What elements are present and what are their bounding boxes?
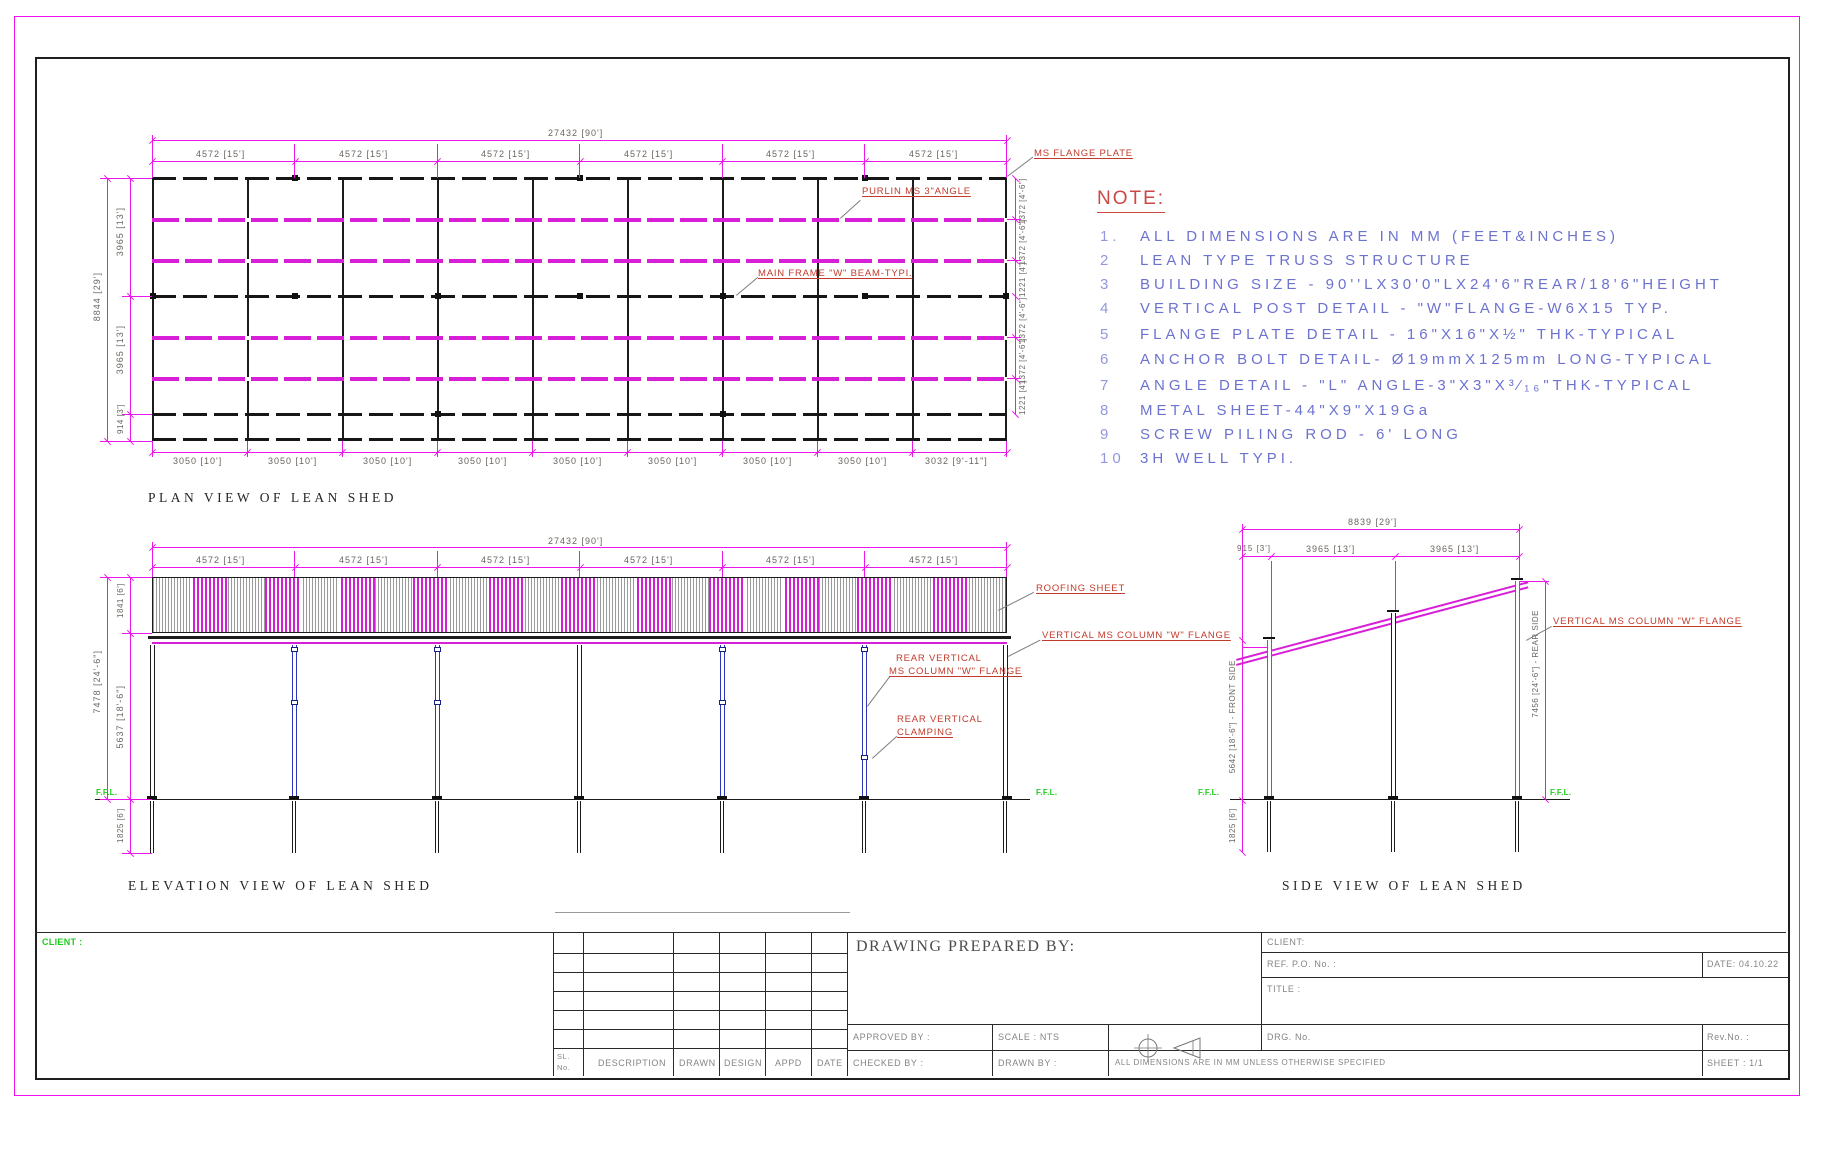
ffl-label: F.F.L. [1550, 788, 1571, 797]
ext-line [1271, 561, 1272, 640]
tb-line [553, 991, 847, 992]
ext-line [437, 551, 438, 577]
tb-date: DATE: 04.10.22 [1707, 959, 1779, 969]
dim-label: 3050 [10'] [648, 456, 697, 466]
clamp-marker [434, 647, 441, 652]
flange-plate [435, 293, 441, 299]
dim-label: 5637 [18'-6"] [115, 685, 125, 748]
note-num: 2 [1100, 252, 1140, 269]
sv-ground-line [1230, 799, 1570, 800]
ext-line [122, 853, 152, 854]
ev-roofing-label: ROOFING SHEET [1036, 583, 1125, 594]
dim-label: 7478 [24'-6"] [92, 650, 102, 713]
dim-label: 3050 [10'] [838, 456, 887, 466]
note-num: 5 [1100, 326, 1140, 343]
note-text: FLANGE PLATE DETAIL - 16"X16"X½" THK-TYP… [1140, 326, 1678, 343]
dim-label: 4572 [15'] [624, 149, 673, 159]
ext-line [579, 144, 580, 178]
sv-dim-overall [1242, 529, 1519, 530]
screw-pile [1391, 801, 1395, 852]
plan-view-title: PLAN VIEW OF LEAN SHED [148, 490, 397, 506]
dim-label: 3965 [13'] [1306, 544, 1355, 554]
dim-label: 3050 [10'] [363, 456, 412, 466]
base-plate [574, 796, 584, 799]
sv-column-cap [1511, 578, 1523, 580]
plan-dim-overall [152, 140, 1007, 141]
ext-line [722, 551, 723, 577]
dim-label: 7456 [24'-6"] - REAR SIDE [1531, 610, 1540, 718]
flange-plate [292, 175, 298, 181]
base-plate [859, 796, 869, 799]
tb-checked-by: CHECKED BY : [853, 1058, 924, 1068]
note-text: BUILDING SIZE - 90''LX30'0"LX24'6"REAR/1… [1140, 276, 1723, 293]
note-item: 103H WELL TYPI. [1100, 450, 1297, 467]
ev-ground-line [95, 799, 1030, 800]
base-plate [717, 796, 727, 799]
tb-line [847, 932, 848, 1076]
note-num: 7 [1100, 377, 1140, 394]
base-plate [1388, 796, 1398, 799]
ext-line [294, 551, 295, 577]
ext-line [1519, 581, 1549, 582]
dim-label: 4572 [15'] [766, 555, 815, 565]
base-plate [432, 796, 442, 799]
tb-rev-no: Rev.No. : [1707, 1032, 1749, 1042]
screw-pile [1003, 801, 1007, 853]
base-plate [1264, 796, 1274, 799]
tb-line [847, 1024, 1788, 1025]
sv-rear-column [1515, 581, 1520, 799]
plan-purlin [152, 336, 1007, 340]
note-text: 3H WELL TYPI. [1140, 450, 1297, 467]
dim-label: 5642 [18'-6"] - FRONT SIDE [1228, 660, 1237, 773]
tb-line [553, 1029, 847, 1030]
dim-label: 4572 [15'] [481, 555, 530, 565]
dim-label: 8839 [29'] [1348, 517, 1397, 527]
fold-mark-line [555, 912, 850, 913]
tb-col-appd: APPD [775, 1058, 802, 1068]
dim-label: 1372 [4'-6"] [1018, 178, 1027, 224]
dim-label: 3050 [10'] [268, 456, 317, 466]
ext-line [152, 441, 153, 457]
dim-label: 3965 [13'] [115, 207, 125, 256]
ev-rear-col-label: MS COLUMN "W" FLANGE [889, 666, 1022, 677]
flange-plate [720, 411, 726, 417]
sv-front-column [1267, 640, 1272, 799]
ext-line [1395, 561, 1396, 612]
ext-line [122, 633, 152, 634]
ext-line [532, 441, 533, 457]
flange-plate [862, 175, 868, 181]
ev-dim-overall [152, 547, 1007, 548]
dim-label: 3050 [10'] [173, 456, 222, 466]
plan-flange-label: MS FLANGE PLATE [1034, 148, 1133, 159]
ev-column [150, 645, 155, 799]
tb-line [553, 1048, 847, 1049]
screw-pile [1515, 801, 1519, 852]
ext-line [1006, 441, 1007, 457]
roofing-sheet-stripes [153, 578, 1006, 632]
ext-line [122, 296, 152, 297]
ev-rear-col-label: REAR VERTICAL [896, 653, 982, 664]
note-num: 3 [1100, 276, 1140, 293]
note-item: 8METAL SHEET-44"X9"X19Ga [1100, 402, 1431, 419]
note-text: ALL DIMENSIONS ARE IN MM (FEET&INCHES) [1140, 228, 1619, 245]
note-text: ANGLE DETAIL - "L" ANGLE-3"X3"X³⁄₁₆"THK-… [1140, 377, 1694, 394]
dim-label: 3050 [10'] [743, 456, 792, 466]
ev-dim-parts [130, 577, 131, 853]
sv-column-label: VERTICAL MS COLUMN "W" FLANGE [1553, 616, 1742, 627]
ext-line [912, 441, 913, 457]
flange-plate [1003, 293, 1009, 299]
side-view-title: SIDE VIEW OF LEAN SHED [1282, 878, 1526, 894]
ev-column [577, 645, 582, 799]
screw-pile [862, 801, 866, 853]
dim-label: 4572 [15'] [196, 555, 245, 565]
ev-rear-column [292, 645, 297, 799]
note-item: 7ANGLE DETAIL - "L" ANGLE-3"X3"X³⁄₁₆"THK… [1100, 377, 1694, 394]
tb-client: CLIENT: [1267, 937, 1305, 947]
note-heading: NOTE: [1097, 188, 1165, 213]
dim-label: 1841 [6'] [116, 583, 125, 618]
screw-pile [1267, 801, 1271, 852]
ext-line [152, 542, 153, 577]
tb-col-no: No. [557, 1063, 570, 1072]
note-item: 5FLANGE PLATE DETAIL - 16"X16"X½" THK-TY… [1100, 326, 1678, 343]
note-text: VERTICAL POST DETAIL - "W"FLANGE-W6X15 T… [1140, 300, 1672, 317]
clamp-marker [719, 647, 726, 652]
dim-label: 1221 [4'] [1018, 262, 1027, 297]
dim-label: 1372 [4'-6"] [1018, 297, 1027, 343]
tb-ref-po: REF. P.O. No. : [1267, 959, 1336, 969]
tb-col-design: DESIGN [724, 1058, 762, 1068]
clamp-marker [861, 647, 868, 652]
tb-line [1261, 932, 1262, 1050]
sv-column-cap [1387, 610, 1399, 612]
ev-rear-column [720, 645, 725, 799]
note-text: METAL SHEET-44"X9"X19Ga [1140, 402, 1431, 419]
ext-line [627, 441, 628, 457]
tb-col-sl: SL. [557, 1052, 570, 1061]
note-num: 6 [1100, 351, 1140, 368]
clamp-marker [291, 647, 298, 652]
dim-label: 4572 [15'] [196, 149, 245, 159]
clamp-marker [861, 755, 868, 760]
dim-label: 4572 [15'] [766, 149, 815, 159]
ev-eave-beam [148, 636, 1011, 639]
dim-label: 1825 [6'] [1228, 808, 1237, 843]
ext-line [722, 441, 723, 457]
sv-dim-rear [1545, 581, 1546, 799]
tb-title-label: TITLE : [1267, 984, 1301, 994]
note-text: SCREW PILING ROD - 6' LONG [1140, 426, 1462, 443]
ev-rear-column [435, 645, 440, 799]
base-plate [289, 796, 299, 799]
ext-line [100, 441, 152, 442]
note-text: ANCHOR BOLT DETAIL- Ø19mmX125mm LONG-TYP… [1140, 351, 1715, 368]
dim-label: 4572 [15'] [339, 555, 388, 565]
dim-label: 1825 [6'] [116, 808, 125, 843]
tb-line [35, 932, 1786, 933]
tb-col-date: DATE [817, 1058, 843, 1068]
note-num: 4 [1100, 300, 1140, 317]
plan-dim-bottom [152, 452, 1007, 453]
plan-main-beam [152, 413, 1007, 416]
ev-clamp-label: REAR VERTICAL [897, 714, 983, 725]
dim-label: 27432 [90'] [548, 536, 603, 546]
ext-line [294, 144, 295, 178]
flange-plate [720, 293, 726, 299]
sv-dim-segs [1242, 556, 1519, 557]
ext-line [342, 441, 343, 457]
ev-column-label: VERTICAL MS COLUMN "W" FLANGE [1042, 630, 1231, 641]
dim-label: 4572 [15'] [339, 149, 388, 159]
tb-line [1261, 952, 1788, 953]
tb-sheet: SHEET : 1/1 [1707, 1058, 1763, 1068]
tb-drawn-by: DRAWN BY : [998, 1058, 1057, 1068]
flange-plate [862, 293, 868, 299]
dim-label: 4572 [15'] [909, 149, 958, 159]
elevation-view-title: ELEVATION VIEW OF LEAN SHED [128, 878, 433, 894]
ext-line [122, 414, 152, 415]
clamp-marker [434, 700, 441, 705]
ext-line [100, 799, 152, 800]
roofing-sheet-band [152, 577, 1007, 633]
tb-client-left: CLIENT : [42, 937, 82, 947]
ext-line [247, 441, 248, 457]
tb-line [553, 972, 847, 973]
plan-purlin-label: PURLIN MS 3"ANGLE [862, 186, 971, 197]
tb-scale: SCALE : NTS [998, 1032, 1060, 1042]
screw-pile [577, 801, 581, 853]
ffl-label: F.F.L. [1036, 788, 1057, 797]
note-num: 1. [1100, 228, 1140, 245]
tb-drg-no: DRG. No. [1267, 1032, 1311, 1042]
dim-label: 1372 [4'-6"] [1018, 338, 1027, 384]
tb-line [1261, 977, 1788, 978]
sv-column-cap [1263, 637, 1275, 639]
ext-line [579, 551, 580, 577]
note-item: 9SCREW PILING ROD - 6' LONG [1100, 426, 1462, 443]
ext-line [152, 135, 153, 178]
clamp-marker [719, 700, 726, 705]
ev-eave-purlin [152, 642, 1007, 644]
flange-plate [577, 175, 583, 181]
note-item: 3BUILDING SIZE - 90''LX30'0"LX24'6"REAR/… [1100, 276, 1723, 293]
note-item: 4VERTICAL POST DETAIL - "W"FLANGE-W6X15 … [1100, 300, 1672, 317]
screw-pile [150, 801, 154, 853]
dim-label: 914 [3'] [116, 404, 125, 434]
screw-pile [720, 801, 724, 853]
plan-frame-label: MAIN FRAME "W" BEAM-TYPI. [758, 268, 912, 279]
plan-purlin [152, 377, 1007, 381]
ext-line [722, 144, 723, 178]
ext-line [864, 551, 865, 577]
plan-purlin [152, 218, 1007, 222]
ext-line [437, 144, 438, 178]
dim-label: 3050 [10'] [458, 456, 507, 466]
flange-plate [577, 293, 583, 299]
ext-line [100, 577, 152, 578]
tb-line [553, 1010, 847, 1011]
dim-label: 4572 [15'] [624, 555, 673, 565]
ext-line [817, 441, 818, 457]
ext-line [437, 441, 438, 457]
flange-plate [435, 411, 441, 417]
tb-col-description: DESCRIPTION [598, 1058, 666, 1068]
note-item: 1.ALL DIMENSIONS ARE IN MM (FEET&INCHES) [1100, 228, 1619, 245]
sv-middle-column [1391, 613, 1396, 799]
dim-label: 3965 [13'] [1430, 544, 1479, 554]
tb-line [553, 953, 847, 954]
note-num: 8 [1100, 402, 1140, 419]
plan-main-beam [152, 438, 1007, 441]
projection-symbol-icon [1130, 1028, 1214, 1068]
tb-col-drawn: DRAWN [679, 1058, 716, 1068]
ext-line [1242, 524, 1243, 646]
base-plate [1002, 796, 1012, 799]
note-item: 2LEAN TYPE TRUSS STRUCTURE [1100, 252, 1474, 269]
note-item: 6ANCHOR BOLT DETAIL- Ø19mmX125mm LONG-TY… [1100, 351, 1715, 368]
dim-label: 4572 [15'] [909, 555, 958, 565]
dim-label: 4572 [15'] [481, 149, 530, 159]
dim-label: 27432 [90'] [548, 128, 603, 138]
ev-rear-column [862, 645, 867, 799]
note-num: 9 [1100, 426, 1140, 443]
ext-line [100, 178, 152, 179]
tb-line [847, 1050, 1788, 1051]
dim-label: 3965 [13'] [115, 325, 125, 374]
ffl-label: F.F.L. [96, 788, 117, 797]
dim-label: 3032 [9'-11"] [925, 456, 988, 466]
flange-plate [292, 293, 298, 299]
note-text: LEAN TYPE TRUSS STRUCTURE [1140, 252, 1474, 269]
dim-label: 8844 [29'] [92, 272, 102, 321]
ev-dim-total [107, 577, 108, 799]
dim-label: 3050 [10'] [553, 456, 602, 466]
ffl-label: F.F.L. [1198, 788, 1219, 797]
note-num: 10 [1100, 450, 1140, 467]
base-plate [1512, 796, 1522, 799]
tb-prepared-by: DRAWING PREPARED BY: [856, 938, 1076, 956]
drawing-sheet: 27432 [90'] 4572 [15'] 4572 [15'] 4572 [… [0, 0, 1821, 1163]
plan-purlin [152, 259, 1007, 263]
ev-clamp-label: CLAMPING [897, 727, 953, 738]
screw-pile [435, 801, 439, 853]
sv-dim-front [1242, 640, 1243, 852]
ext-line [864, 144, 865, 178]
plan-dim-depth [107, 178, 108, 441]
ext-line [1006, 542, 1007, 577]
clamp-marker [291, 700, 298, 705]
ext-line [1006, 135, 1007, 178]
tb-approved-by: APPROVED BY : [853, 1032, 930, 1042]
dim-label: 1372 [4'-6"] [1018, 219, 1027, 265]
ext-line [1519, 524, 1520, 578]
dim-label: 1221 [4'] [1018, 380, 1027, 415]
screw-pile [292, 801, 296, 853]
plan-dim-rows [130, 178, 131, 441]
tb-line [1702, 952, 1703, 977]
